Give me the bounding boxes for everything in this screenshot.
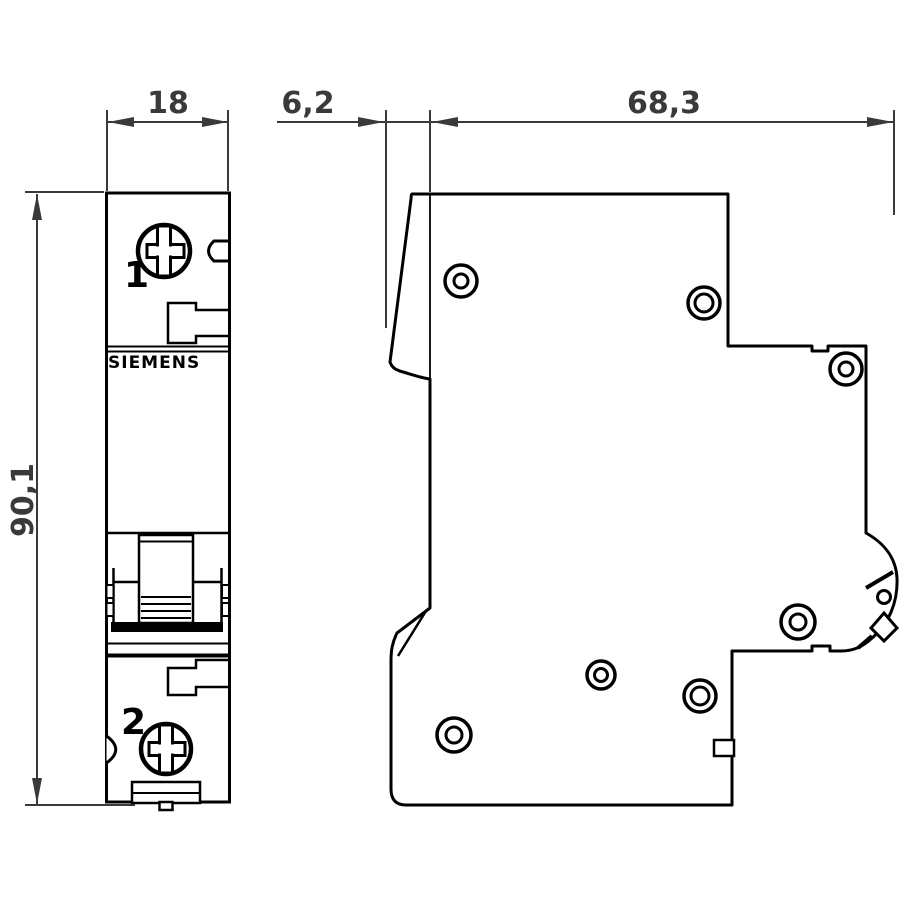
bottom-clip	[132, 782, 200, 810]
arrow-left-icon	[432, 117, 458, 127]
rivet	[445, 265, 477, 297]
arrow-left-icon	[108, 117, 134, 127]
arrow-down-icon	[32, 778, 42, 804]
terminal-1-label: 1	[124, 255, 149, 296]
rivet	[684, 680, 716, 712]
arrow-right-icon	[358, 117, 384, 127]
height-dimension-label: 90,1	[6, 463, 41, 537]
front-view: 1 SIEMENS	[107, 193, 230, 810]
drawing-svg: 18 6,2 68,3 90,1 1	[0, 0, 900, 900]
rear-tab	[714, 740, 734, 756]
dimension-width: 18	[107, 86, 228, 191]
toggle-slot	[111, 622, 223, 632]
arrow-right-icon	[202, 117, 228, 127]
side-view	[390, 194, 897, 805]
arrow-right-icon	[867, 117, 893, 127]
technical-drawing-canvas: 18 6,2 68,3 90,1 1	[0, 0, 900, 900]
siemens-logo-text: SIEMENS	[108, 353, 200, 373]
rivet	[688, 287, 720, 319]
toggle-protrusion-dimension-label: 6,2	[281, 86, 334, 121]
rivet	[781, 605, 815, 639]
screw-head-bottom	[141, 724, 191, 774]
depth-dimension-label: 68,3	[627, 86, 701, 121]
width-dimension-label: 18	[147, 86, 189, 121]
arrow-up-icon	[32, 194, 42, 220]
rivet	[587, 661, 615, 689]
rivet	[437, 718, 471, 752]
rivet	[830, 353, 862, 385]
toggle-lever	[139, 535, 193, 623]
